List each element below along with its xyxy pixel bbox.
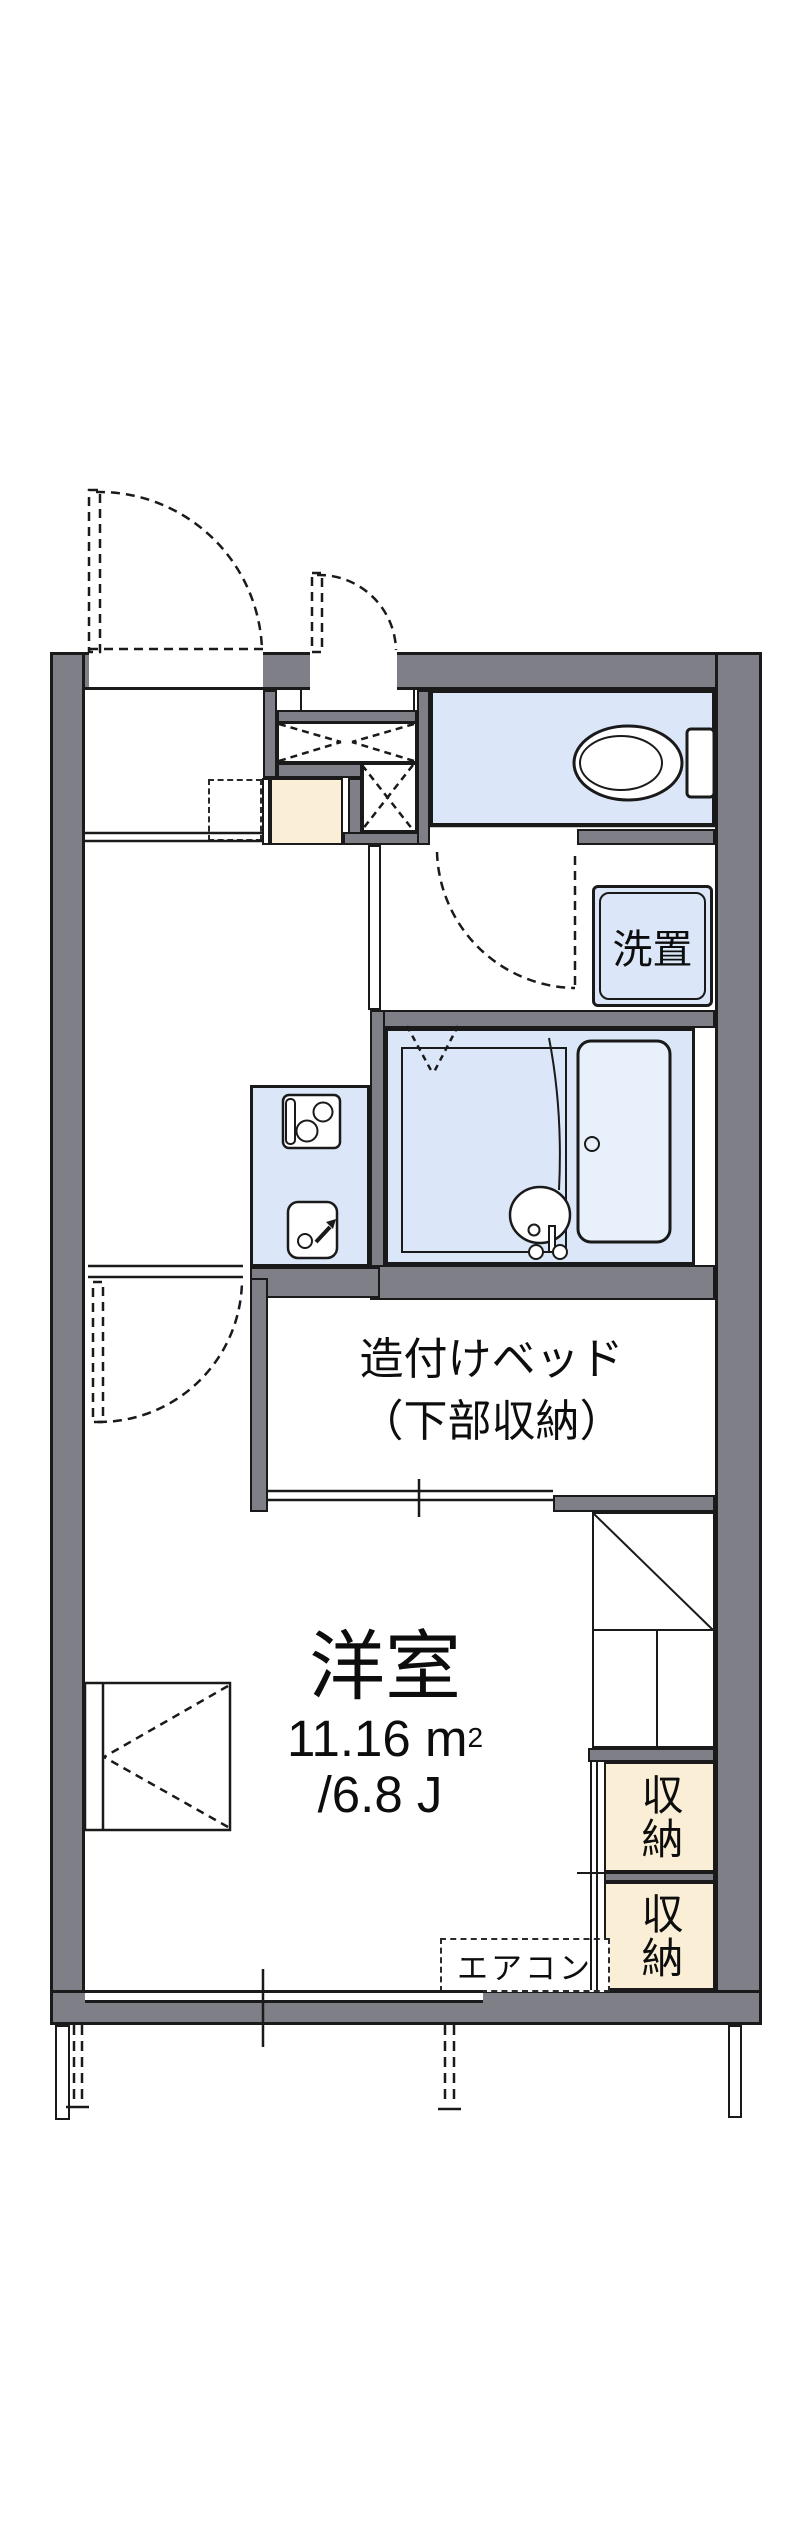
entrance-door-swing-left xyxy=(89,490,263,652)
balcony-post-right xyxy=(728,2025,742,2118)
wall-bath-top xyxy=(370,1010,715,1028)
washer-label: 洗置 xyxy=(592,885,713,1007)
room-door-swing xyxy=(93,1281,242,1422)
built-in-bed-label: 造付けベッド （下部収納） xyxy=(268,1326,715,1456)
balcony-dashed-edges xyxy=(74,2025,454,2105)
entrance-door-swing-right xyxy=(312,573,396,652)
storage1-label: 収納 xyxy=(604,1764,715,1870)
toilet-door-swing xyxy=(437,852,575,988)
room-area-jo: /6.8 J xyxy=(180,1766,580,1822)
room-area: 11.16 m2 xyxy=(185,1710,585,1766)
genkan-entry-area xyxy=(270,778,343,845)
entrance-opening-left xyxy=(89,652,263,690)
aircon-label: エアコン xyxy=(440,1938,610,1992)
wall-bath-left xyxy=(370,1010,385,1300)
wall-bed-bottom-right xyxy=(553,1495,715,1512)
room-title: 洋室 xyxy=(185,1618,585,1702)
wall-right xyxy=(715,652,762,2025)
shoe-cabinet-dashed xyxy=(208,779,262,841)
wall-washer-top xyxy=(577,829,715,845)
wall-closet-mid-v xyxy=(348,778,362,834)
kitchen-counter xyxy=(250,1085,370,1267)
wall-bath-bottom xyxy=(370,1265,715,1300)
wall-left xyxy=(50,652,85,2025)
wall-room-partition xyxy=(250,1278,268,1512)
overhead-closet-lower xyxy=(362,763,417,832)
floorplan-canvas: 洗置 造付けベッド （下部収納） 洋室 11.16 m2 /6.8 J 収納 収… xyxy=(0,0,800,2541)
window-bottom xyxy=(85,1990,483,2003)
genkan-floor xyxy=(262,778,270,845)
wall-storage-top xyxy=(588,1748,715,1762)
entry-recess xyxy=(300,690,415,712)
balcony-edge-ticks xyxy=(66,2107,461,2109)
wall-genkan-left xyxy=(263,690,277,778)
bed-front-window xyxy=(268,1479,553,1517)
overhead-closet-upper xyxy=(277,722,417,763)
entrance-opening-right xyxy=(310,652,397,692)
partition-hall xyxy=(368,845,381,1010)
storage2-label: 収納 xyxy=(604,1884,715,1988)
room-threshold xyxy=(88,1266,243,1277)
wall-storage-divider xyxy=(604,1872,715,1882)
bathroom xyxy=(385,1028,695,1265)
wall-closet-mid-h xyxy=(277,763,362,778)
toilet-room xyxy=(430,690,715,826)
bed-steps-box xyxy=(592,1512,715,1748)
wall-toilet-left xyxy=(417,690,430,845)
balcony-post-left xyxy=(55,2025,70,2120)
wall-bed-top xyxy=(250,1267,380,1298)
